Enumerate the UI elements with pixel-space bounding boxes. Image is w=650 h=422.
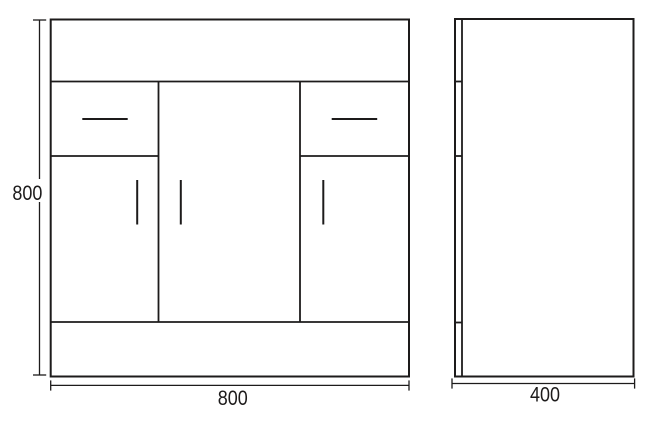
svg-text:800: 800 [12,180,42,205]
svg-text:800: 800 [218,385,248,410]
svg-text:400: 400 [530,382,560,407]
